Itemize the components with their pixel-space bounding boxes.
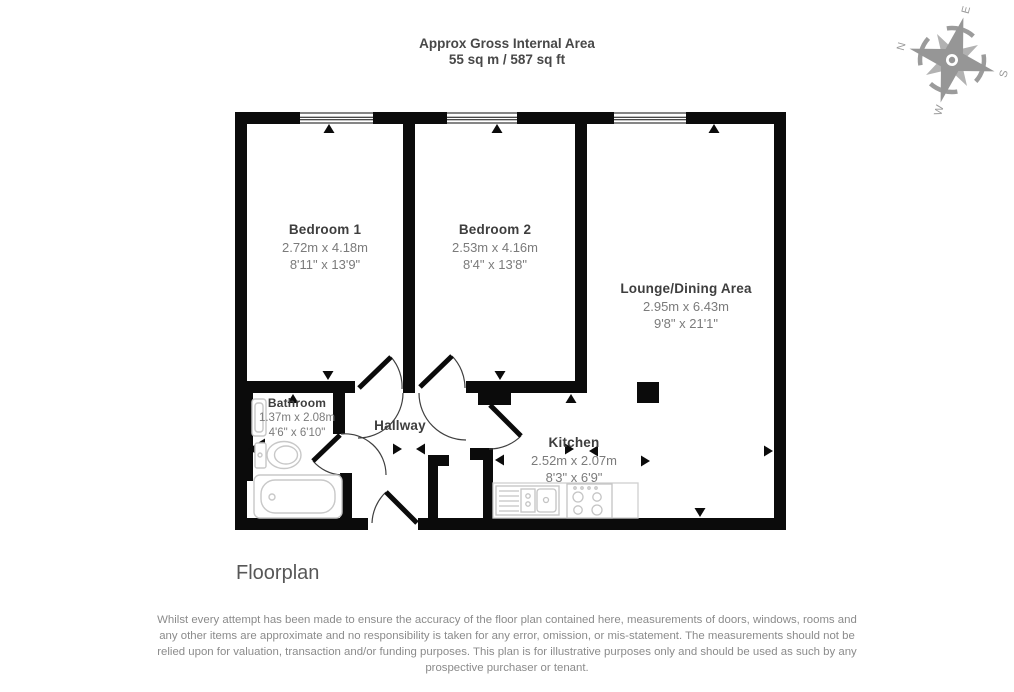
room-dims-imperial: 8'4" x 13'8" <box>452 256 538 273</box>
compass-w-label: W <box>932 103 946 117</box>
compass-e-label: E <box>960 5 973 15</box>
room-name: Kitchen <box>531 434 617 452</box>
room-dims-metric: 2.72m x 4.18m <box>282 239 368 256</box>
room-dims-metric: 2.53m x 4.16m <box>452 239 538 256</box>
room-dims-imperial: 8'11" x 13'9" <box>282 256 368 273</box>
disclaimer-line: prospective purchaser or tenant. <box>0 660 1014 676</box>
window-icon <box>300 112 373 124</box>
title-line1: Approx Gross Internal Area <box>419 36 595 52</box>
compass-rose-icon: N E S W <box>881 0 1014 131</box>
title-line2: 55 sq m / 587 sq ft <box>419 52 595 68</box>
room-label-hallway: Hallway <box>374 417 426 435</box>
bathtub-icon <box>254 475 342 518</box>
room-label-bathroom: Bathroom 1.37m x 2.08m 4'6" x 6'10" <box>259 396 335 441</box>
room-label-bedroom1: Bedroom 1 2.72m x 4.18m 8'11" x 13'9" <box>282 221 368 273</box>
disclaimer-line: any other items are approximate and no r… <box>0 628 1014 644</box>
disclaimer-text: Whilst every attempt has been made to en… <box>0 612 1014 676</box>
compass-s-label: S <box>997 69 1010 79</box>
toilet-icon <box>255 442 301 469</box>
room-name: Lounge/Dining Area <box>620 280 751 298</box>
room-dims-imperial: 8'3" x 6'9" <box>531 469 617 486</box>
disclaimer-line: relied upon for valuation, transaction a… <box>0 644 1014 660</box>
floorplan-caption: Floorplan <box>236 562 319 585</box>
floorplan-drawing: N E S W <box>0 0 1014 692</box>
window-icon <box>614 112 686 124</box>
window-icons <box>300 112 686 124</box>
floorplan-page: N E S W Approx Gross Internal Area 55 sq… <box>0 0 1014 692</box>
page-title: Approx Gross Internal Area 55 sq m / 587… <box>419 36 595 68</box>
room-dims-imperial: 9'8" x 21'1" <box>620 315 751 332</box>
room-dims-metric: 2.52m x 2.07m <box>531 452 617 469</box>
room-name: Hallway <box>374 417 426 435</box>
room-dims-metric: 1.37m x 2.08m <box>259 411 335 426</box>
room-label-bedroom2: Bedroom 2 2.53m x 4.16m 8'4" x 13'8" <box>452 221 538 273</box>
sink-icon <box>496 486 559 515</box>
window-icon <box>447 112 517 124</box>
room-dims-metric: 2.95m x 6.43m <box>620 298 751 315</box>
kitchen-fixtures <box>493 483 638 518</box>
pillar <box>637 382 659 403</box>
room-name: Bedroom 1 <box>282 221 368 239</box>
room-name: Bedroom 2 <box>452 221 538 239</box>
stove-icon <box>567 484 612 518</box>
room-name: Bathroom <box>259 396 335 411</box>
room-label-kitchen: Kitchen 2.52m x 2.07m 8'3" x 6'9" <box>531 434 617 486</box>
room-dims-imperial: 4'6" x 6'10" <box>259 426 335 441</box>
disclaimer-line: Whilst every attempt has been made to en… <box>0 612 1014 628</box>
room-label-lounge: Lounge/Dining Area 2.95m x 6.43m 9'8" x … <box>620 280 751 332</box>
compass-n-label: N <box>895 41 909 52</box>
